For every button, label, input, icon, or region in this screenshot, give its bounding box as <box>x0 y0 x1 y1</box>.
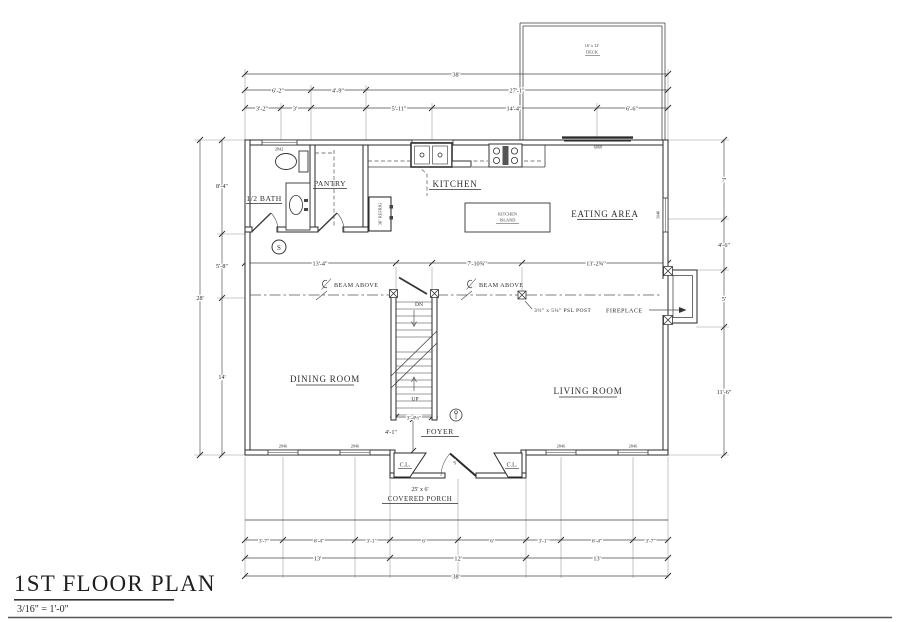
room-label-porch: COVERED PORCH <box>388 495 453 503</box>
foyer: FOYER <box>421 409 462 437</box>
psl-post-marker <box>518 291 526 299</box>
title-block: 1ST FLOOR PLAN 3/16" = 1'-0" <box>8 571 892 618</box>
island-label-line2: ISLAND <box>500 218 516 223</box>
room-label-half-bath: 1/2 BATH <box>246 194 281 203</box>
scale-label: 3/16" = 1'-0" <box>17 604 69 615</box>
faucet <box>304 208 308 211</box>
floor-plan-drawing: 16' x 12' DECK 2842 3042 6068 3046 <box>0 0 900 622</box>
dim: 6' <box>422 538 426 544</box>
dim: 4'-6" <box>718 242 730 249</box>
psl-post-label: 3½" x 5¼" PSL POST <box>534 307 591 314</box>
dim: 14'-4" <box>507 105 522 112</box>
dim: 3'-1" <box>366 538 376 544</box>
dim-foyer-depth: 4'-1" <box>385 429 397 436</box>
stair-wall-left <box>391 295 396 420</box>
room-label-living: LIVING ROOM <box>553 386 622 396</box>
fireplace: FIREPLACE <box>606 267 697 325</box>
dim: 6'-2" <box>272 87 284 94</box>
room-labels: DINING ROOM LIVING ROOM <box>290 374 623 397</box>
dim-overall-top: 38' <box>452 71 459 78</box>
window-size-label: 2846 <box>629 444 638 449</box>
faucet <box>304 199 308 202</box>
pantry: PANTRY <box>313 150 347 232</box>
stair-break-line <box>391 331 437 376</box>
burner <box>511 157 517 163</box>
refrigerator-label: 36" REFRIG <box>378 203 383 225</box>
dim: 6'-4" <box>314 538 324 544</box>
fireplace-label: FIREPLACE <box>606 308 643 315</box>
window-size-label: 2846 <box>557 444 566 449</box>
dim: 6' <box>490 538 494 544</box>
dim: 5'-11" <box>392 105 407 112</box>
window-size-label: 6068 <box>594 145 603 150</box>
dim: 3'-7" <box>645 538 655 544</box>
wall-left <box>245 140 250 455</box>
wall-pantry-kitchen <box>363 145 368 232</box>
beam-above: BEAM ABOVE BEAM ABOVE 3½" x 5¼" PSL POST <box>250 279 663 315</box>
deck-label: DECK <box>586 50 599 55</box>
dim: 13'-2¾" <box>586 260 606 267</box>
island-label-line1: KITCHEN <box>498 212 517 217</box>
stairs-down-label: DN <box>415 302 423 308</box>
dim: 3'-2" <box>256 105 268 112</box>
window-size-label: 2846 <box>279 444 288 449</box>
closet-label: C.L. <box>507 463 518 469</box>
page-title: 1ST FLOOR PLAN <box>14 571 216 596</box>
closet-label: C.L. <box>400 463 411 469</box>
basement-door-leaf <box>399 278 427 295</box>
dim: 7'-10¾" <box>467 260 487 267</box>
dim: 5'-8" <box>216 263 228 270</box>
room-label-eating-area: EATING AREA <box>571 209 639 219</box>
dim: 5' <box>722 296 726 303</box>
dim: 7' <box>722 177 726 184</box>
dim: 8'-4" <box>216 183 228 190</box>
dim: 13' <box>314 555 321 562</box>
covered-porch: 25' x 6' COVERED PORCH <box>245 487 668 520</box>
room-label-dining: DINING ROOM <box>290 374 360 384</box>
burner <box>493 148 499 154</box>
dim-overall-bottom: 38' <box>452 573 459 580</box>
burner <box>493 157 499 163</box>
deck-size-label: 16' x 12' <box>585 43 600 48</box>
window-size-label: 3046 <box>656 210 661 219</box>
toilet-tank <box>299 151 308 172</box>
dim: 27'-1" <box>510 87 525 94</box>
bath-door-leaf <box>252 213 271 232</box>
dim: 3'-7" <box>259 538 269 544</box>
title-underline <box>14 599 174 601</box>
smoke-detector-label: S <box>277 244 281 252</box>
stairs-up-label: UP <box>411 397 418 403</box>
staircase: DN UP <box>390 278 439 421</box>
dim: 11'-6" <box>717 389 732 396</box>
dim-stair-width: 3'-4½" <box>407 414 421 421</box>
half-bath: 1/2 BATH S <box>246 151 310 254</box>
window-size-label: 2842 <box>275 147 284 152</box>
dim-overall-left: 28' <box>196 295 203 302</box>
room-label-kitchen: KITCHEN <box>432 179 477 189</box>
beam-above-label: BEAM ABOVE <box>334 282 378 289</box>
burner <box>511 148 517 154</box>
dim: 6'-4" <box>592 538 602 544</box>
dim: 3' <box>293 105 297 112</box>
stair-wall-right <box>432 295 437 420</box>
dim: 13' <box>593 555 600 562</box>
toilet-bowl <box>276 154 297 170</box>
window-size-label: 2846 <box>351 444 360 449</box>
vanity-sink <box>290 196 303 215</box>
drawing-sheet: 16' x 12' DECK 2842 3042 6068 3046 <box>0 0 900 622</box>
room-label-foyer: FOYER <box>426 427 454 436</box>
dishwasher <box>452 161 471 167</box>
dim: 6'-6" <box>626 105 638 112</box>
beam-above-label: BEAM ABOVE <box>479 282 523 289</box>
dim: 3'-1" <box>538 538 548 544</box>
room-label-pantry: PANTRY <box>314 179 346 188</box>
dim: 13'-4" <box>313 260 328 267</box>
dim: 4'-9" <box>332 87 344 94</box>
dim: 14' <box>218 374 225 381</box>
dim: 12' <box>454 555 461 562</box>
porch-size-label: 25' x 6' <box>411 487 428 493</box>
kitchen: 36" REFRIG KITCHEN KITCHEN ISLAND EATING… <box>368 143 639 232</box>
deck-outline: 16' x 12' DECK <box>520 23 665 140</box>
